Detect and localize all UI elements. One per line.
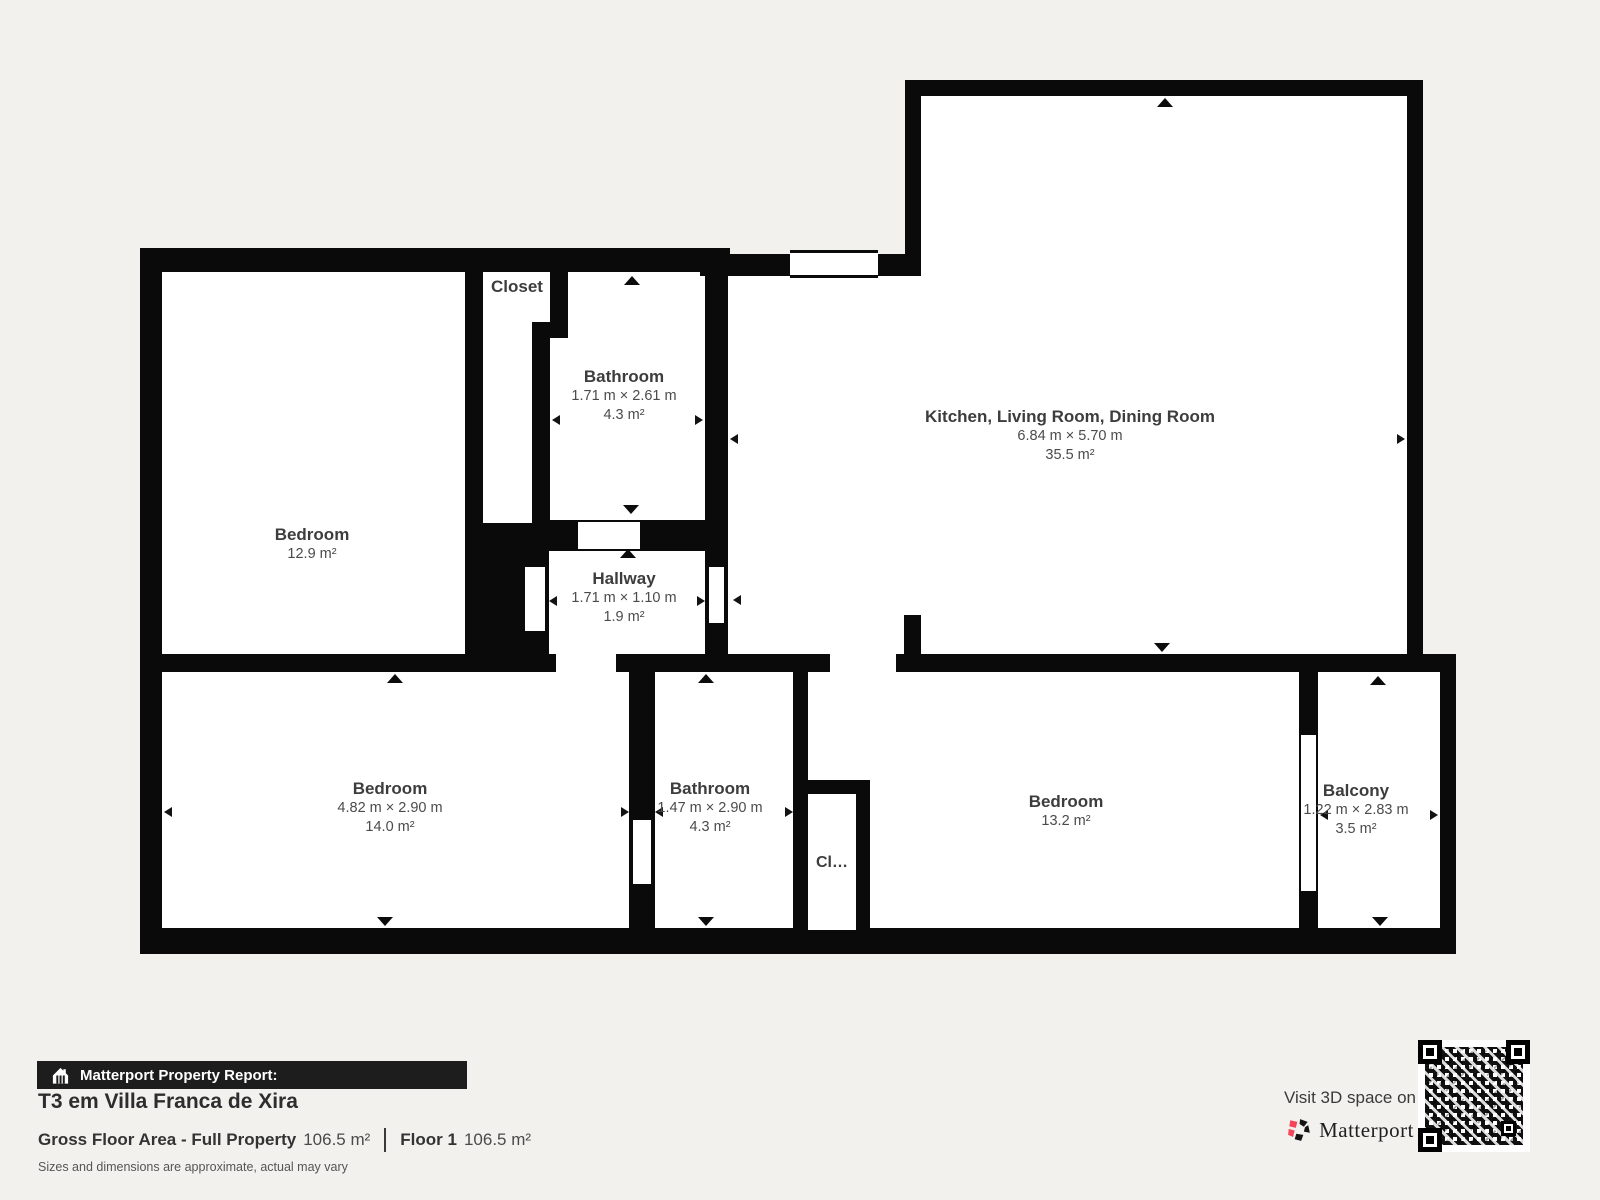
dimension-arrow-icon (164, 807, 172, 817)
wall-segment (140, 248, 162, 954)
room-name: Hallway (571, 568, 676, 589)
disclaimer-text: Sizes and dimensions are approximate, ac… (38, 1160, 348, 1174)
wall-segment (905, 80, 921, 276)
qr-alignment-icon (1501, 1121, 1516, 1136)
dimension-arrow-icon (549, 596, 557, 606)
wall-segment (140, 654, 1456, 672)
room-label-bathroom-top: Bathroom 1.71 m × 2.61 m 4.3 m² (571, 366, 676, 424)
room-area: 4.3 m² (657, 818, 762, 836)
door-opening-bathroom-top (578, 522, 640, 549)
door-marker-icon (698, 917, 714, 926)
door-opening-hallway-left (525, 567, 545, 631)
wall-segment (904, 615, 921, 654)
room-dimensions: 1.71 m × 2.61 m (571, 387, 676, 406)
qr-finder-icon (1418, 1128, 1442, 1152)
room-label-balcony: Balcony 1.22 m × 2.83 m 3.5 m² (1303, 780, 1408, 838)
wall-segment (1440, 654, 1456, 954)
dimension-arrow-icon (621, 807, 629, 817)
door-marker-icon (1370, 676, 1386, 685)
room-label-closet-bottom: Cl… (816, 852, 848, 873)
room-dimensions: 1.47 m × 2.90 m (657, 799, 762, 818)
matterport-wordmark: Matterport (1319, 1118, 1414, 1143)
screenshot-root: Closet Bathroom 1.71 m × 2.61 m 4.3 m² K… (0, 0, 1600, 1200)
room-name: Bedroom (337, 778, 442, 799)
door-marker-icon (377, 917, 393, 926)
wall-segment (140, 928, 1456, 954)
room-label-closet: Closet (491, 276, 543, 297)
wall-segment (878, 254, 908, 276)
room-area: 13.2 m² (1029, 812, 1104, 830)
wall-segment (1407, 80, 1423, 672)
dimension-arrow-icon (730, 434, 738, 444)
qr-code (1418, 1040, 1530, 1152)
room-name: Bedroom (275, 524, 350, 545)
floor-value: 106.5 m² (464, 1130, 531, 1150)
door-marker-icon (1154, 643, 1170, 652)
floor-area-metrics: Gross Floor Area - Full Property 106.5 m… (38, 1128, 531, 1152)
floor-corridor (718, 265, 924, 657)
matterport-logo: Matterport (1286, 1117, 1414, 1143)
room-label-hallway: Hallway 1.71 m × 1.10 m 1.9 m² (571, 568, 676, 626)
room-label-bedroom-right: Bedroom 13.2 m² (1029, 791, 1104, 830)
door-opening-hallway-bottom (556, 654, 616, 672)
room-label-kitchen-living: Kitchen, Living Room, Dining Room 6.84 m… (925, 406, 1215, 464)
wall-segment (532, 335, 550, 523)
room-area: 4.3 m² (571, 406, 676, 424)
report-bar-label: Matterport Property Report: (80, 1067, 278, 1084)
dimension-arrow-icon (552, 415, 560, 425)
metrics-divider (384, 1128, 386, 1152)
room-area: 12.9 m² (275, 545, 350, 563)
room-name: Bathroom (571, 366, 676, 387)
door-opening-bathroom-bottom (633, 820, 651, 884)
dimension-arrow-icon (1430, 810, 1438, 820)
report-header-bar: Matterport Property Report: (37, 1061, 467, 1089)
gross-area-label: Gross Floor Area - Full Property (38, 1130, 296, 1150)
room-area: 35.5 m² (925, 446, 1215, 464)
door-marker-icon (1372, 917, 1388, 926)
wall-segment (905, 80, 1423, 96)
door-marker-icon (698, 674, 714, 683)
floor-kitchen-living (915, 90, 1413, 660)
floor-label: Floor 1 (400, 1130, 457, 1150)
room-area: 3.5 m² (1303, 820, 1408, 838)
door-opening-bedroom-right (830, 654, 896, 672)
wall-segment (465, 248, 483, 523)
door-opening-hallway-right (709, 567, 724, 623)
wall-segment (629, 672, 655, 928)
room-dimensions: 4.82 m × 2.90 m (337, 799, 442, 818)
room-label-bedroom-bottomleft: Bedroom 4.82 m × 2.90 m 14.0 m² (337, 778, 442, 836)
room-label-bedroom-topleft: Bedroom 12.9 m² (275, 524, 350, 563)
gross-area-value: 106.5 m² (303, 1130, 370, 1150)
matterport-pinwheel-icon (1286, 1117, 1312, 1143)
dimension-arrow-icon (1397, 434, 1405, 444)
door-marker-icon (1157, 98, 1173, 107)
dimension-arrow-icon (697, 596, 705, 606)
door-marker-icon (387, 674, 403, 683)
room-dimensions: 1.71 m × 1.10 m (571, 589, 676, 608)
wall-segment (140, 248, 730, 272)
room-name: Kitchen, Living Room, Dining Room (925, 406, 1215, 427)
door-marker-icon (623, 505, 639, 514)
property-title: T3 em Villa Franca de Xira (38, 1090, 298, 1114)
room-name: Closet (491, 276, 543, 297)
room-name: Balcony (1303, 780, 1408, 801)
room-dimensions: 1.22 m × 2.83 m (1303, 801, 1408, 820)
dimension-arrow-icon (695, 415, 703, 425)
room-name: Bathroom (657, 778, 762, 799)
floor-bedroom-topleft (150, 258, 470, 658)
qr-finder-icon (1418, 1040, 1442, 1064)
door-marker-icon (620, 549, 636, 558)
door-marker-icon (624, 276, 640, 285)
door-opening-entrance (790, 250, 878, 278)
room-label-bathroom-bottom: Bathroom 1.47 m × 2.90 m 4.3 m² (657, 778, 762, 836)
house-icon (51, 1066, 70, 1085)
room-name: Bedroom (1029, 791, 1104, 812)
room-name: Cl… (816, 852, 848, 873)
room-area: 1.9 m² (571, 608, 676, 626)
qr-finder-icon (1506, 1040, 1530, 1064)
room-dimensions: 6.84 m × 5.70 m (925, 427, 1215, 446)
door-marker-icon (733, 595, 741, 605)
dimension-arrow-icon (785, 807, 793, 817)
room-area: 14.0 m² (337, 818, 442, 836)
